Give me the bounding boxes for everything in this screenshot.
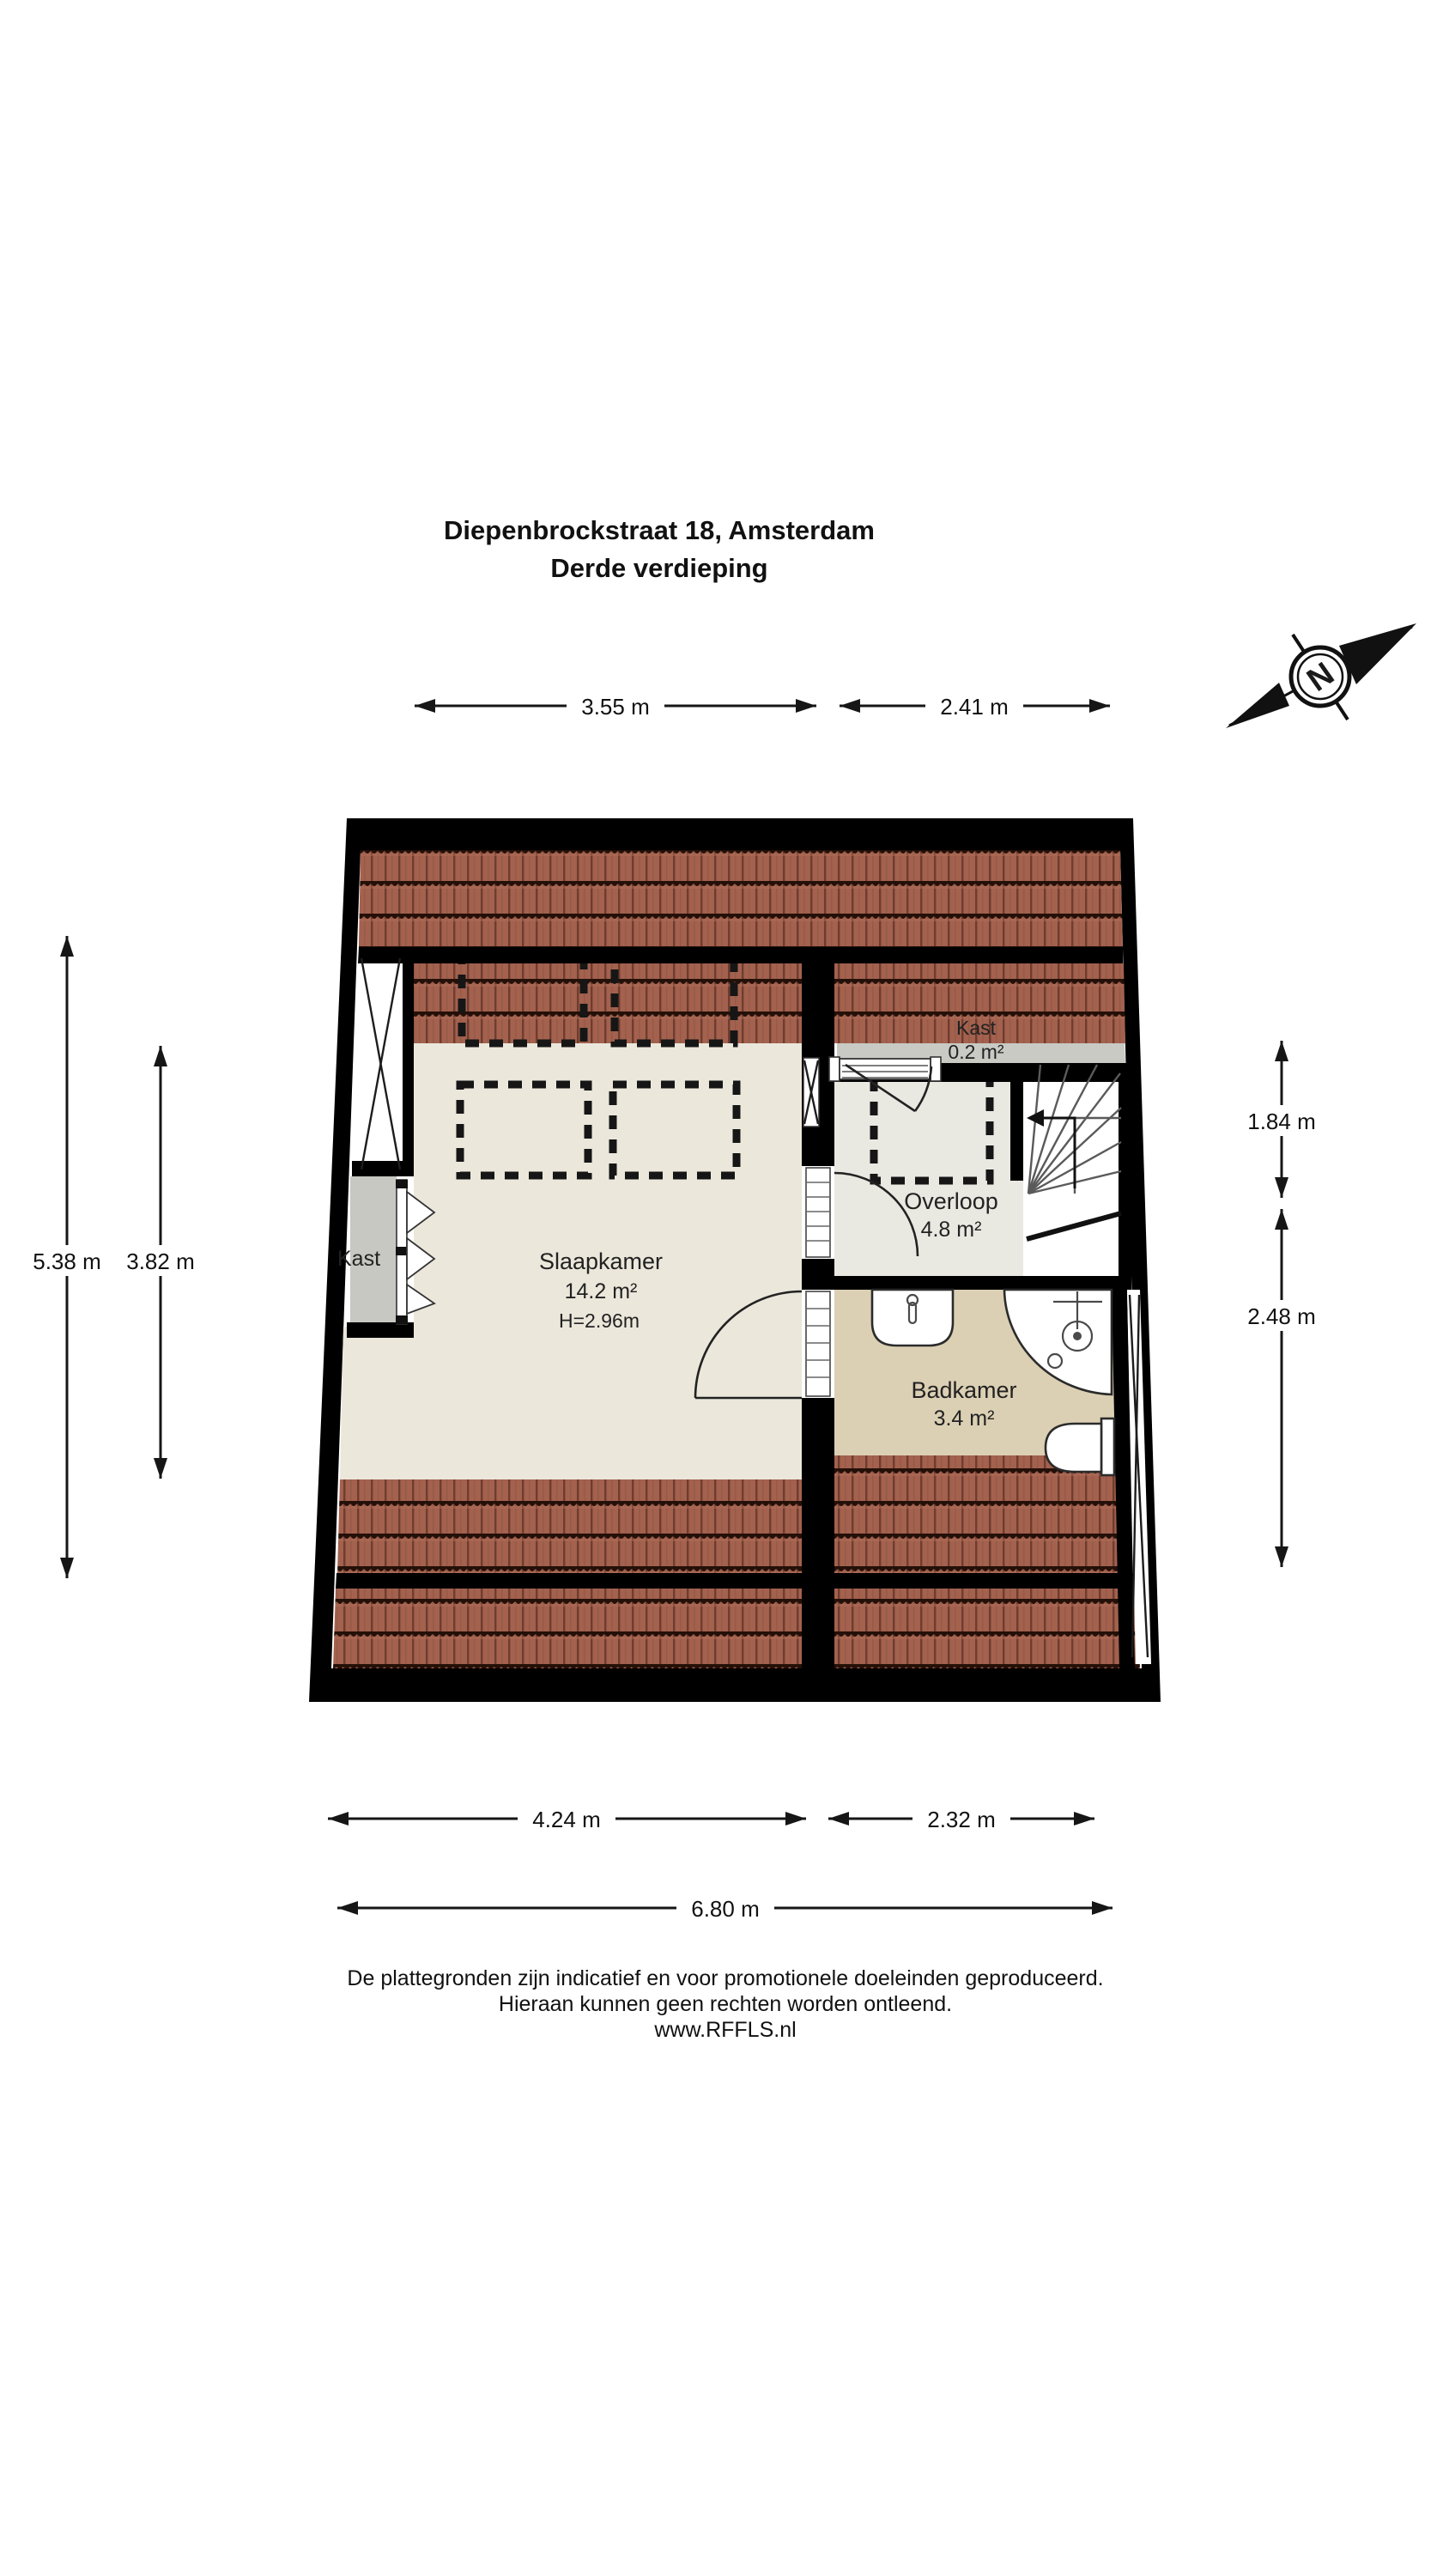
floorplan-page: Diepenbrockstraat 18, Amsterdam Derde ve… [0, 0, 1449, 2576]
wall-horizontal-upper [358, 947, 1123, 963]
dim-top-2-label: 2.41 m [940, 694, 1009, 720]
dim-bottom-total-label: 6.80 m [691, 1896, 760, 1922]
title-floor: Derde verdieping [550, 553, 767, 583]
badkamer-name: Badkamer [911, 1377, 1016, 1403]
slaapkamer-area: 14.2 m² [565, 1279, 638, 1303]
dim-bottom-2-label: 2.32 m [927, 1807, 996, 1832]
dim-bottom-1-label: 4.24 m [532, 1807, 601, 1832]
dim-left-1-label: 5.38 m [33, 1249, 101, 1274]
wall-window-strip [403, 947, 414, 1176]
wall-horizontal-lower [336, 1573, 1138, 1589]
sink-icon [872, 1290, 953, 1346]
disclaimer-line-2: Hieraan kunnen geen rechten worden ontle… [499, 1992, 952, 2016]
wall-stairs-left [1010, 1065, 1023, 1181]
dim-left-2-label: 3.82 m [126, 1249, 195, 1274]
disclaimer-line-1: De plattegronden zijn indicatief en voor… [347, 1966, 1103, 1990]
slaapkamer-name: Slaapkamer [539, 1249, 663, 1274]
dim-right-2-label: 2.48 m [1247, 1303, 1316, 1329]
floorplan-svg: Diepenbrockstraat 18, Amsterdam Derde ve… [0, 0, 1449, 2576]
dim-top-1-label: 3.55 m [581, 694, 650, 720]
room-overloop-floor [834, 1082, 1023, 1288]
door-frame-overloop [806, 1168, 830, 1257]
slaapkamer-height: H=2.96m [559, 1309, 640, 1332]
wall-overloop-bottom [834, 1276, 1131, 1290]
center-wall-window [803, 1058, 819, 1127]
roof-band-top [359, 850, 1123, 947]
roof-band-bottom [333, 1589, 1140, 1668]
floorplan: Slaapkamer 14.2 m² H=2.96m Kast Kast 0.2… [309, 818, 1161, 1702]
closet-small-name: Kast [956, 1017, 997, 1039]
disclaimer-website: www.RFFLS.nl [653, 2018, 796, 2042]
closet-small-area: 0.2 m² [948, 1041, 1004, 1063]
roof-band-upper-left [412, 963, 802, 1043]
door-frame-badkamer [806, 1291, 830, 1396]
wall-stairs-right [1119, 1063, 1131, 1277]
overloop-name: Overloop [904, 1188, 998, 1214]
toilet-icon [1046, 1419, 1114, 1475]
title-address: Diepenbrockstraat 18, Amsterdam [444, 515, 875, 545]
roof-band-lower-left [337, 1479, 802, 1573]
roof-band-lower-right [834, 1455, 1119, 1573]
badkamer-area: 3.4 m² [934, 1406, 995, 1431]
closet-left-label: Kast [337, 1247, 380, 1271]
dim-right-1-label: 1.84 m [1247, 1109, 1316, 1134]
overloop-area: 4.8 m² [921, 1218, 982, 1242]
